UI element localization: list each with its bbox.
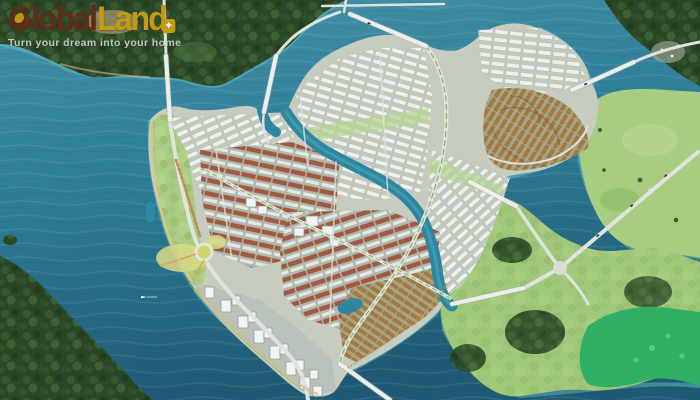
screenshot-root: Global Land ✦ Turn your dream into your … — [0, 0, 700, 400]
island-forest-patch — [505, 310, 565, 354]
island-road-junction — [553, 261, 567, 275]
island-forest-patch — [492, 237, 532, 263]
globalland-logo: Global Land ✦ Turn your dream into your … — [8, 2, 186, 49]
park-pond — [145, 201, 155, 223]
star-icon: ✦ — [162, 19, 175, 33]
logo-tagline: Turn your dream into your home — [8, 37, 186, 49]
island-forest-patch — [624, 276, 672, 308]
island-forest-patch — [450, 344, 486, 372]
logo-text-global: Global — [8, 2, 96, 36]
logo-text-land: Land — [97, 2, 166, 36]
masterplan-aerial-render — [0, 0, 700, 400]
logo-wordmark: Global Land ✦ — [8, 2, 175, 36]
